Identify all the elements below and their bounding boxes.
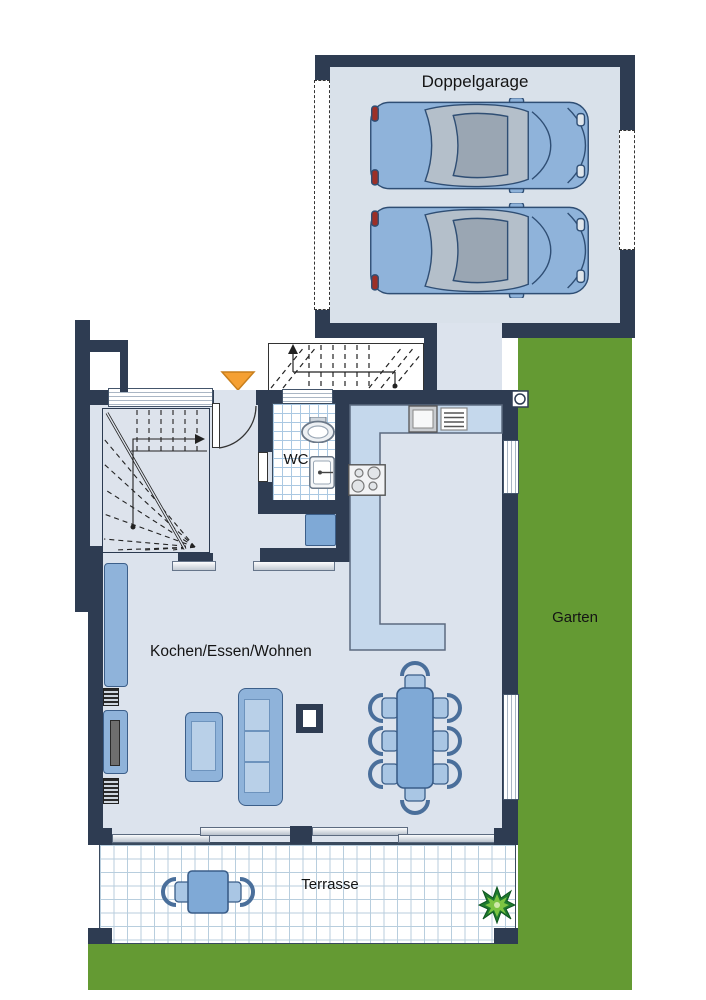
sliding-door-panel — [200, 827, 296, 836]
upper-stair-icon — [268, 343, 424, 392]
step-sill — [253, 561, 335, 571]
garage-label: Doppelgarage — [330, 72, 620, 92]
sliding-door-panel — [398, 834, 496, 843]
garage-wall-top — [315, 55, 635, 67]
garage-side-door-icon — [619, 130, 635, 250]
car-icon — [367, 98, 592, 193]
wc-wall-left-upper — [258, 390, 272, 452]
terrace-set-icon — [160, 866, 256, 918]
sliding-door-panel — [112, 834, 210, 843]
garage-wall-bottom-left — [315, 323, 435, 338]
sink-icon — [408, 405, 470, 433]
speaker-icon — [103, 778, 119, 804]
window-icon — [503, 440, 519, 494]
terrace-post — [494, 828, 518, 845]
step-sill — [172, 561, 216, 571]
living-room-label: Kochen/Essen/Wohnen — [150, 643, 310, 661]
closet-wall-bottom — [260, 548, 347, 562]
sliding-door-panel — [312, 827, 408, 836]
stair-icon — [102, 408, 210, 553]
entrance-arrow-icon — [220, 370, 256, 392]
garage-corridor-floor — [435, 323, 502, 398]
closet-cabinet — [305, 514, 336, 546]
corridor-wall-left — [424, 323, 437, 398]
kitchen-counter — [345, 400, 505, 652]
garage-wall-left-upper — [315, 55, 330, 80]
outdoor-lamp-icon — [511, 390, 529, 408]
tv-icon — [110, 720, 120, 766]
floor-plan: Garten Doppelgarage — [0, 0, 706, 1000]
garage-wall-right-upper — [620, 55, 635, 130]
sofa-icon — [238, 688, 283, 806]
terrace-post — [494, 928, 518, 944]
terrace-post — [88, 928, 112, 944]
garage-wall-bottom-right — [502, 323, 635, 338]
terrace-label: Terrasse — [270, 876, 390, 893]
wc-label: WC — [274, 451, 318, 468]
terrace-post — [88, 828, 112, 845]
garden-area-right — [518, 338, 632, 990]
garden-area-bottom — [88, 943, 632, 990]
glass-wall-post — [290, 826, 312, 846]
plant-icon — [478, 886, 516, 924]
garden-label: Garten — [530, 609, 620, 626]
house-wall-left-lower — [88, 546, 103, 845]
entrance-door-swing — [212, 400, 262, 452]
dining-set-icon — [368, 658, 462, 818]
wc-wall-bottom — [258, 500, 347, 514]
armchair-icon — [185, 712, 223, 782]
toilet-icon — [300, 417, 336, 443]
window-icon — [503, 694, 519, 800]
wc-door-leaf — [258, 452, 268, 482]
sideboard-icon — [104, 563, 128, 687]
niche-wall-right — [120, 340, 128, 392]
stove-icon — [348, 464, 386, 496]
car-icon — [367, 203, 592, 298]
speaker-icon — [103, 688, 119, 706]
fireplace-icon — [296, 704, 323, 733]
garage-door-icon — [314, 80, 330, 310]
